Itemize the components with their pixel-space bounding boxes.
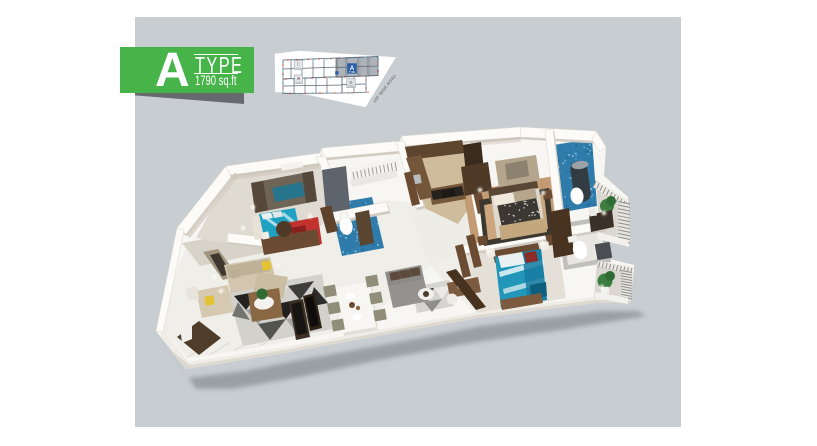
svg-text:TYPE: TYPE: [296, 82, 302, 84]
svg-text:TYPE: TYPE: [348, 86, 354, 88]
svg-text:TYPE: TYPE: [349, 71, 356, 74]
svg-text:B: B: [349, 80, 352, 85]
svg-text:TYPE: TYPE: [296, 68, 302, 70]
